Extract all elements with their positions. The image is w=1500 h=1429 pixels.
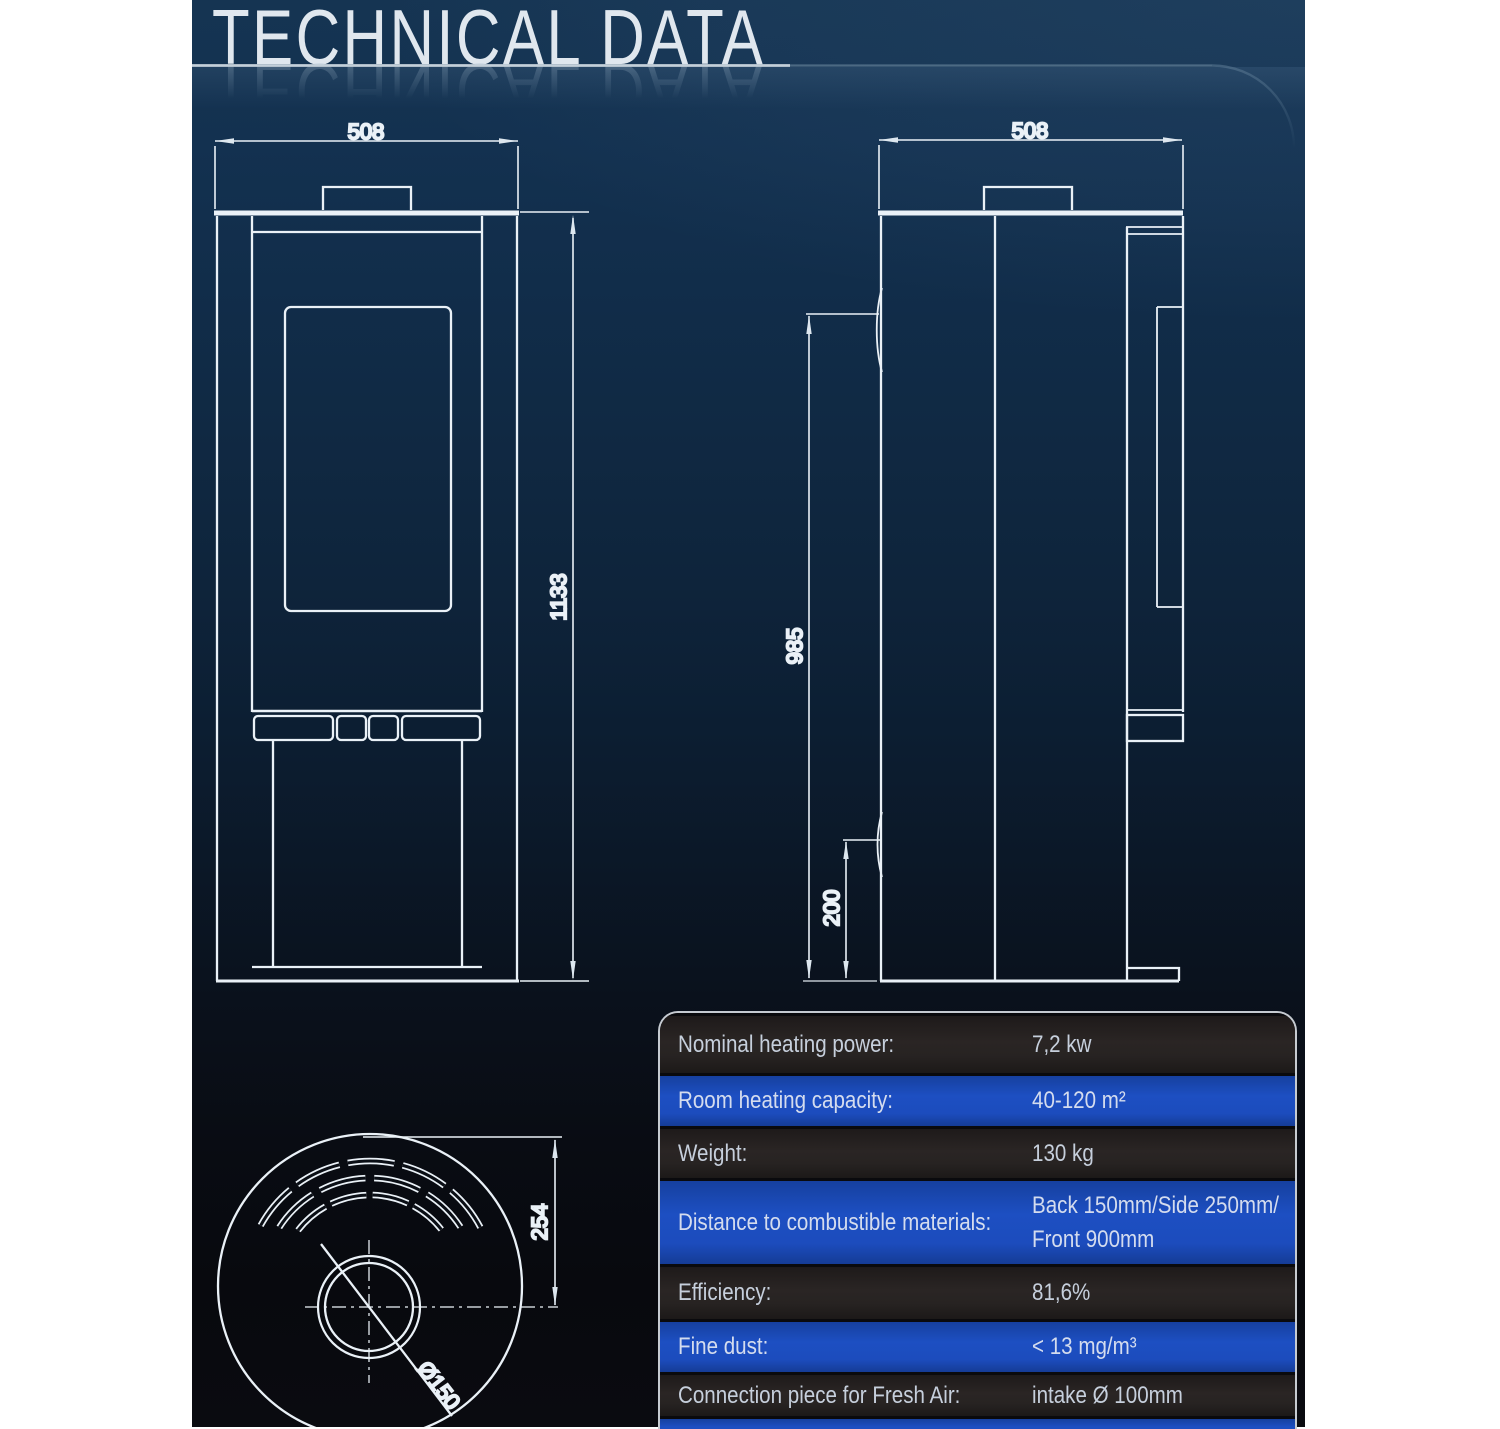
svg-text:508: 508 [1012,118,1049,143]
svg-text:508: 508 [348,119,385,144]
svg-text:Ø150: Ø150 [412,1356,465,1414]
svg-text:200: 200 [819,890,844,927]
svg-text:254: 254 [527,1204,552,1241]
svg-text:1133: 1133 [546,573,571,620]
svg-text:985: 985 [782,628,807,665]
